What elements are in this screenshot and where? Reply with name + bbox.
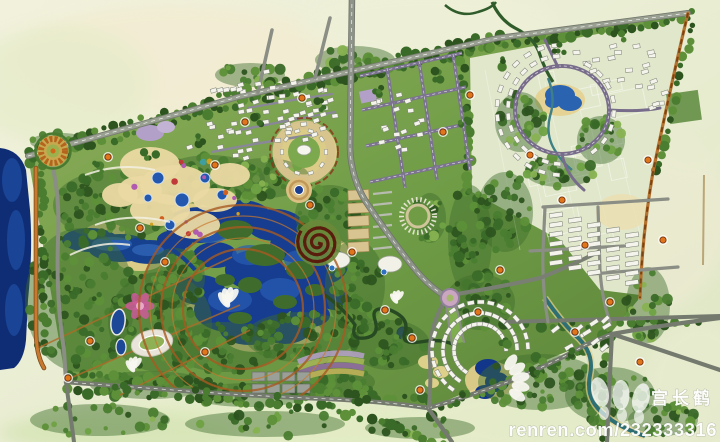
- artist-watermark-text: 宫长鹤: [651, 388, 714, 408]
- plan-canvas: 宫长鹤 renren.com/232333316: [0, 0, 720, 442]
- masterplan-rendering: 宫长鹤 renren.com/232333316: [0, 0, 720, 442]
- loop-pond: [558, 95, 582, 111]
- commercial-strip: [348, 228, 369, 239]
- site-watermark-text: renren.com/232333316: [509, 419, 718, 440]
- commercial-strip: [348, 215, 369, 226]
- green-circle-plaza: [407, 205, 429, 227]
- theme-park-zone: [170, 211, 220, 239]
